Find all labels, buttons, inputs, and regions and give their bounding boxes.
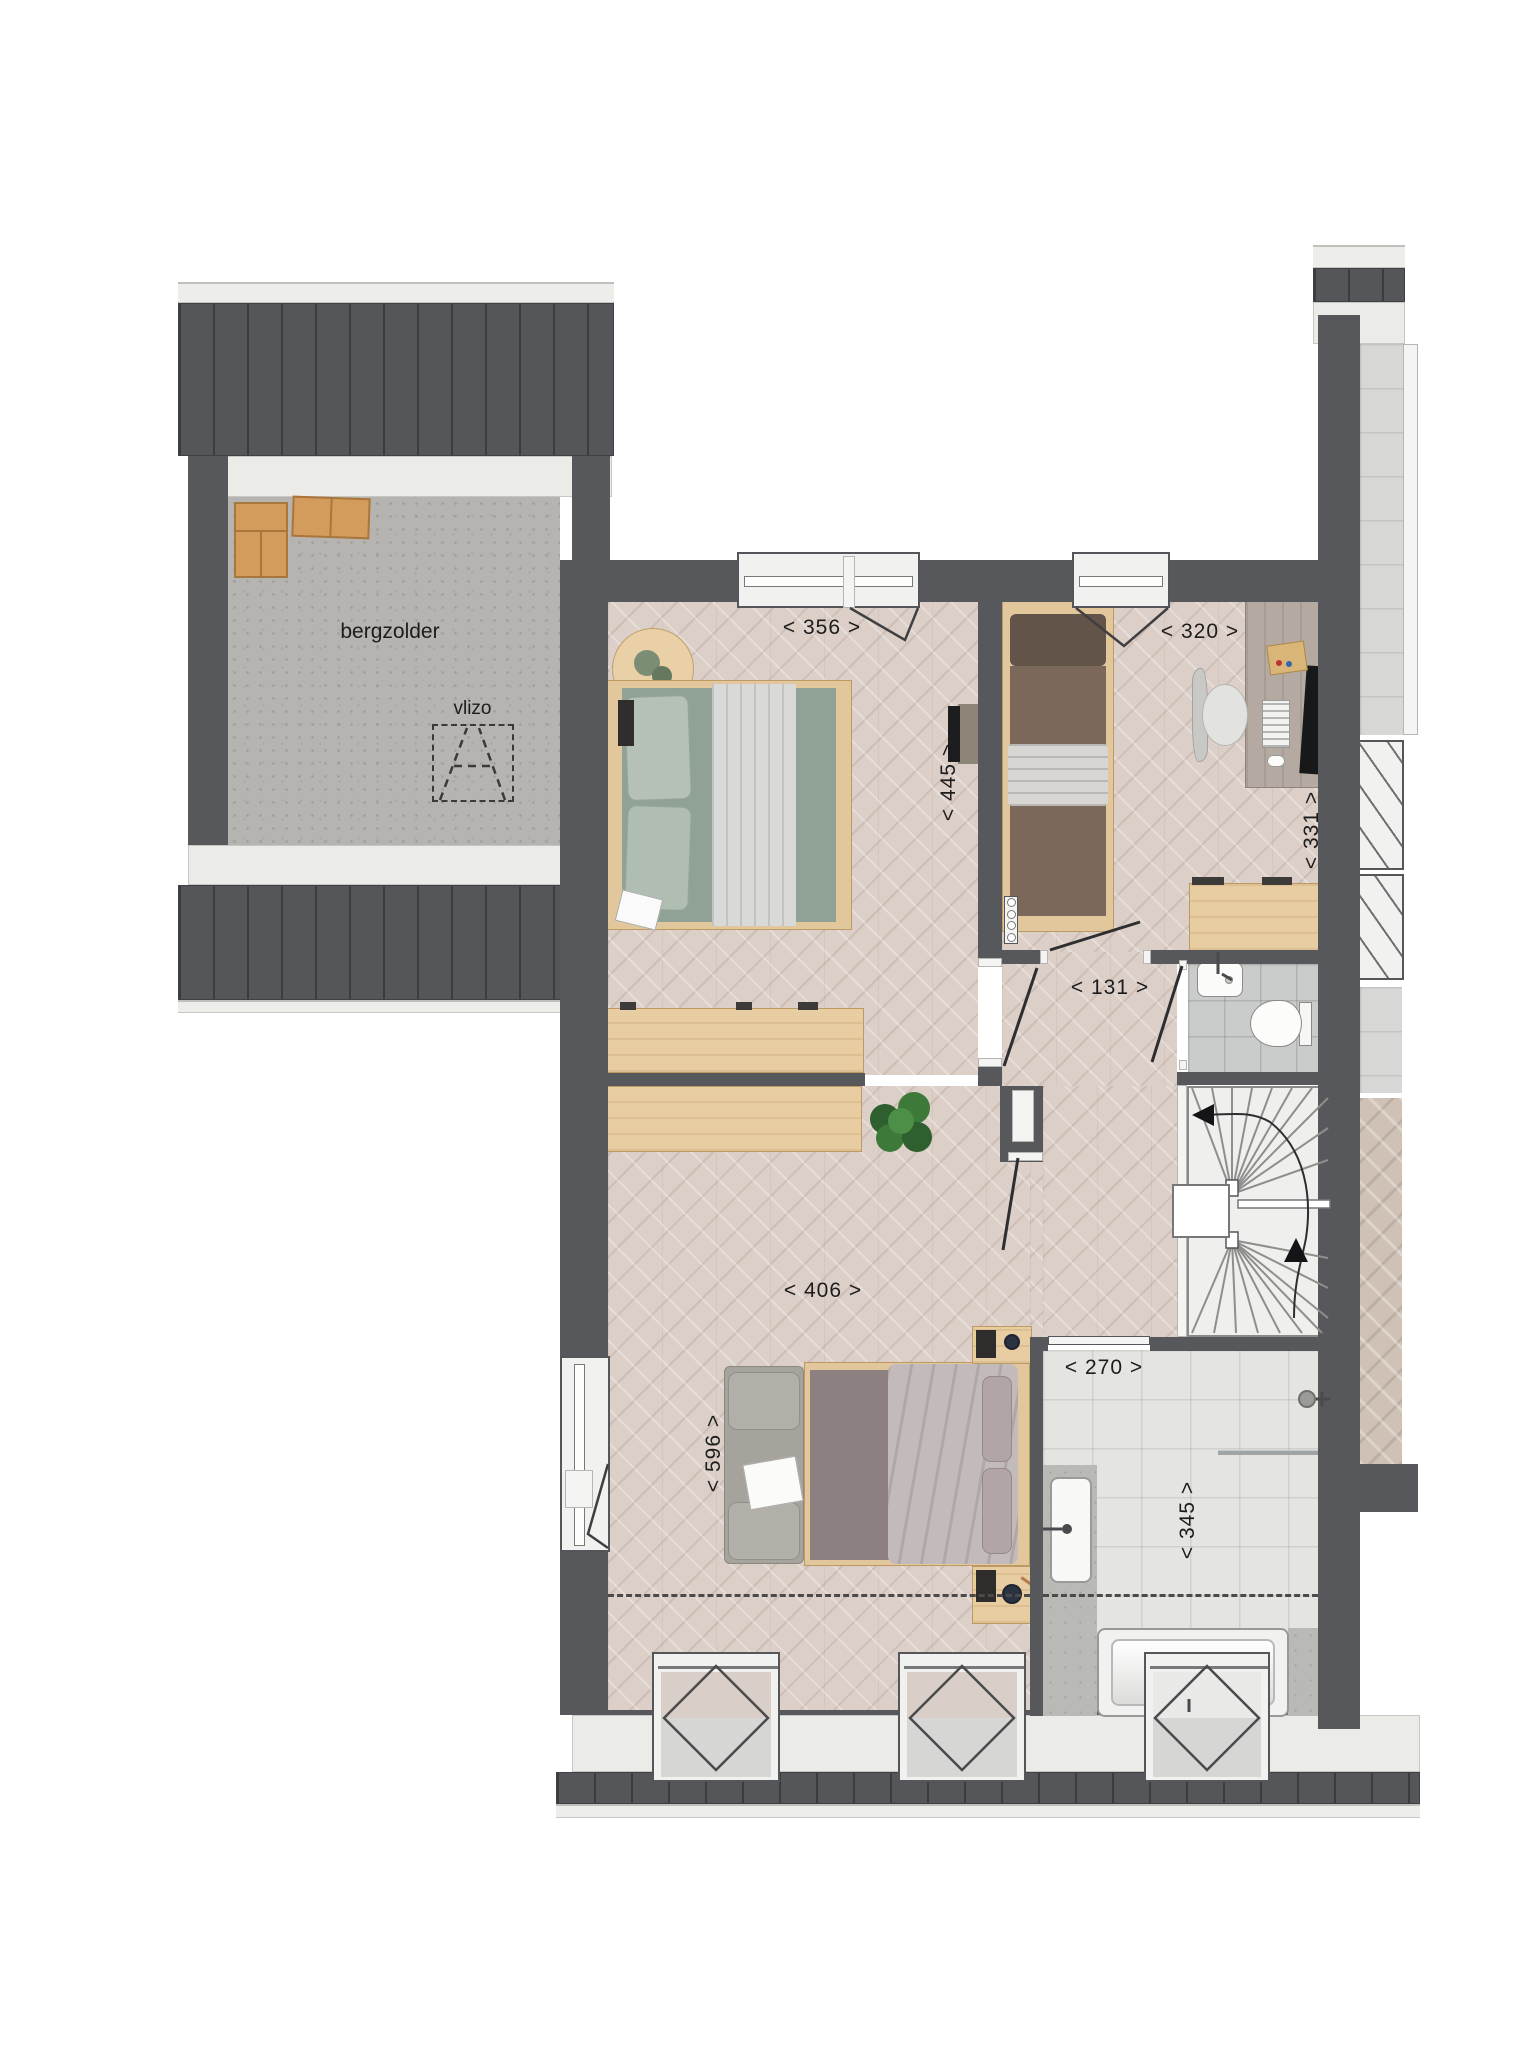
door-leaf-lines [1003,922,1182,1250]
dimension-bedroom2-depth: < 331 > [1300,770,1324,890]
dimension-hallway-width: < 131 > [1050,976,1170,1000]
dimension-bedroom1-width: < 356 > [762,616,882,640]
dimension-bedroom1-depth: < 445 > [937,722,961,842]
stairs-flight-divider [1238,1200,1330,1208]
dimension-bedroom3-width: < 406 > [763,1279,883,1303]
stairs-landing [1173,1185,1229,1237]
window-swing-lines [588,608,1168,1548]
fixture-lines [1043,952,1330,1712]
dimension-bathroom-width: < 270 > [1044,1356,1164,1380]
arrow-left-icon [1192,1104,1214,1126]
vlizo-ladder-icon [440,728,505,800]
floor-plan: bergzolder vlizo < 356 > < 320 > < 445 >… [0,0,1536,2048]
plan-linework [0,0,1536,2048]
dimension-bathroom-depth: < 345 > [1176,1460,1200,1580]
hatch-label-vlizo: vlizo [430,698,515,720]
dimension-bedroom3-depth: < 596 > [702,1393,726,1513]
dormer-diamond-lines [664,1666,1259,1770]
dimension-bedroom2-width: < 320 > [1140,620,1260,644]
room-label-bergzolder: bergzolder [300,620,480,644]
